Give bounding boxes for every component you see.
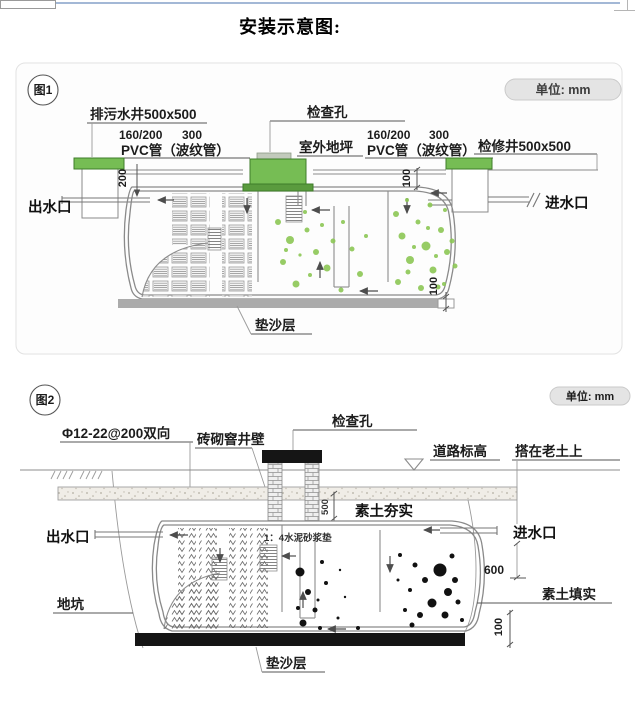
pvc-left-dim2: 300 — [182, 128, 202, 142]
figure2-badge-label: 图2 — [36, 393, 55, 407]
inspection-cap-fig2 — [262, 450, 322, 463]
page: 安装示意图: — [0, 0, 637, 706]
inspection-hole-label-fig2: 检查孔 — [332, 413, 373, 429]
concrete-slab — [58, 487, 517, 500]
svg-text:500: 500 — [320, 499, 331, 515]
figure2: 图2 单位: mm Φ12-22@200双向 砖砌窨井壁 检查孔 道路标高 搭在… — [20, 385, 630, 672]
unit-label: 单位: mm — [536, 82, 591, 97]
sand-layer-label-fig1: 垫沙层 — [255, 317, 296, 333]
dim-100-fig2: 100 — [493, 610, 513, 648]
brick-wall-label: 砖砌窨井壁 — [197, 431, 265, 447]
outlet-pipe-fig2 — [95, 530, 163, 539]
svg-text:100: 100 — [493, 618, 505, 636]
outlet-label-fig2: 出水口 — [46, 528, 90, 546]
pvc-right-dim1: 160/200 — [367, 128, 411, 142]
inspection-shaft-fig2 — [262, 450, 322, 521]
access-well-label: 检修井500x500 — [478, 138, 571, 154]
svg-text:100: 100 — [428, 277, 440, 295]
sand-layer-label-fig2: 垫沙层 — [266, 655, 307, 671]
soil-fill-label: 素土填实 — [542, 586, 596, 602]
unit-label: 单位: mm — [566, 389, 614, 403]
dim-600: 600 — [484, 541, 526, 580]
compacted-soil-label: 素土夯实 — [355, 502, 413, 520]
sand-base-fig1 — [118, 299, 438, 308]
on-old-soil-label: 搭在老土上 — [515, 443, 583, 459]
pvc-left-dim1: 160/200 — [119, 128, 163, 142]
outdoor-ground-label: 室外地坪 — [299, 139, 353, 155]
installation-diagram: 图1 单位: mm 排污水井500x500 160/200 300 PVC管（波… — [0, 0, 637, 706]
mortar-pad-label: 1：4水泥砂浆垫 — [264, 532, 332, 544]
svg-text:100: 100 — [401, 169, 413, 187]
svg-text:600: 600 — [484, 563, 504, 577]
pit-label: 地坑 — [57, 596, 84, 612]
svg-text:200: 200 — [117, 169, 129, 187]
rebar-label: Φ12-22@200双向 — [62, 425, 170, 441]
ground-line-fig2 — [20, 470, 620, 479]
inlet-label-fig2: 进水口 — [513, 524, 557, 542]
figure1-badge-label: 图1 — [34, 83, 53, 97]
inlet-label: 进水口 — [545, 194, 589, 212]
inspection-cap-fig1 — [243, 153, 313, 191]
inspection-hole-label: 检查孔 — [307, 104, 348, 120]
pvc-right-dim2: 300 — [429, 128, 449, 142]
sand-base-fig2 — [135, 633, 465, 646]
pvc-right-label: PVC管（波纹管） — [367, 142, 476, 158]
road-level-label: 道路标高 — [433, 443, 487, 459]
pvc-left-label: PVC管（波纹管） — [121, 142, 230, 158]
outlet-label: 出水口 — [28, 198, 72, 216]
dim-100-top: 100 — [401, 167, 420, 190]
sewage-well-label: 排污水井500x500 — [90, 106, 197, 122]
figure1: 图1 单位: mm 排污水井500x500 160/200 300 PVC管（波… — [16, 63, 622, 354]
level-symbol — [405, 459, 423, 470]
